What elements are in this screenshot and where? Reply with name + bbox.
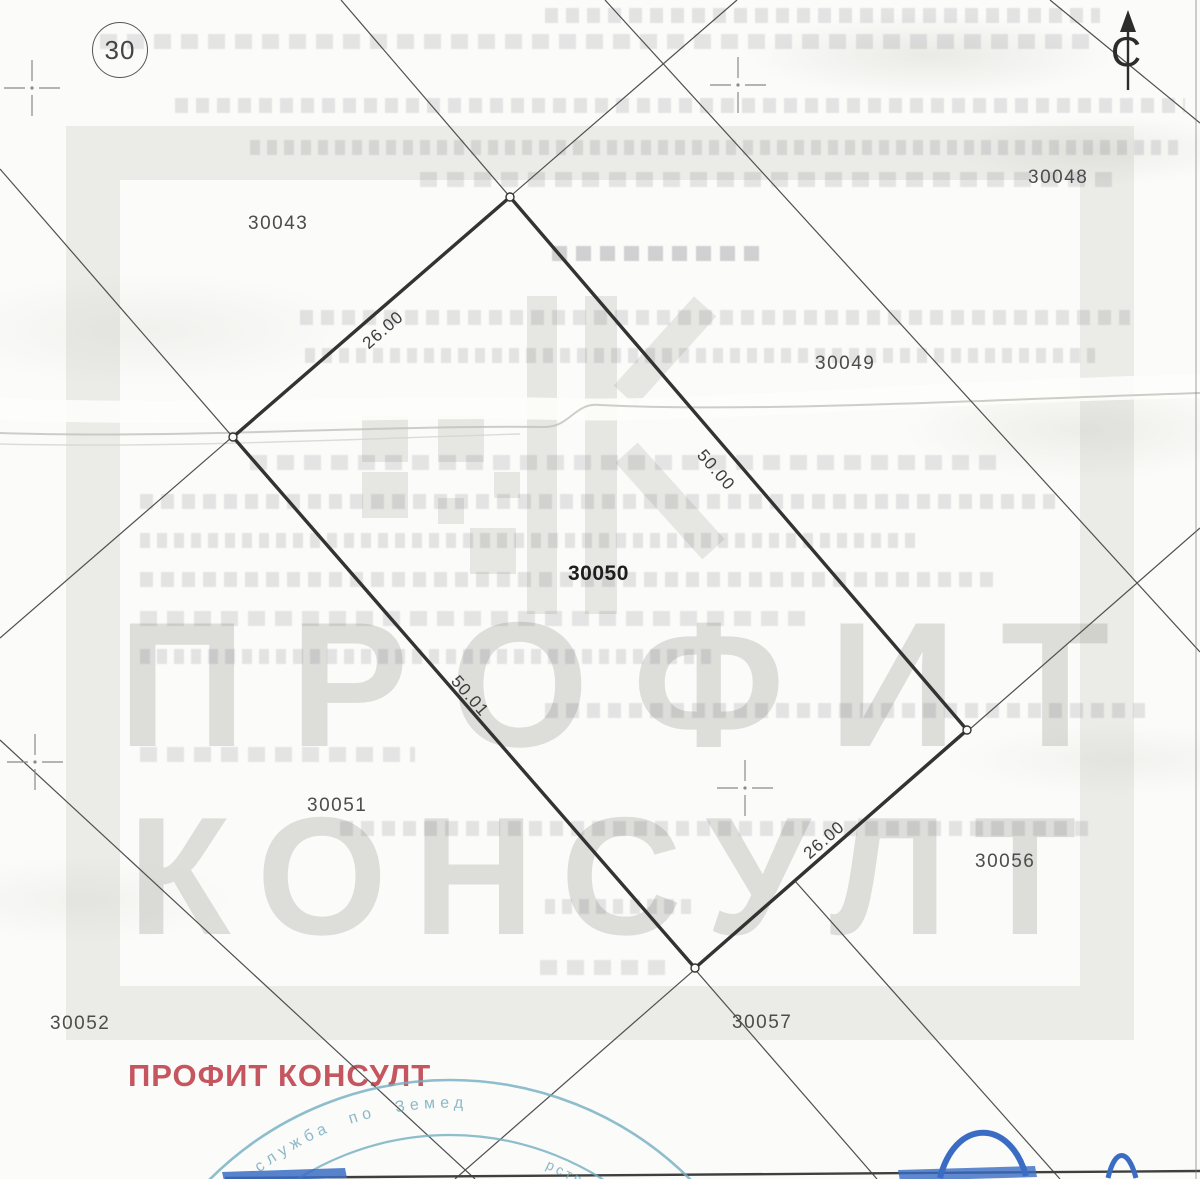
parcel-label-30048: 30048 <box>1028 168 1088 187</box>
scanned-cadastral-sketch: ПРОФИТ КОНСУЛТ ПРОФИТ КОНСУЛТ <box>0 0 1200 1179</box>
parcel-label-30052: 30052 <box>50 1014 110 1033</box>
parcel-boundaries-thin <box>0 0 1200 1179</box>
north-arrow-head <box>1120 10 1136 32</box>
survey-crosshair <box>7 734 63 790</box>
pen-signature-arc <box>1108 1156 1136 1179</box>
pen-marks <box>222 1133 1136 1179</box>
map-sheet-number-circle: 30 <box>92 22 148 78</box>
survey-point <box>506 193 514 201</box>
paper-crease <box>0 374 1200 445</box>
boundary-line <box>795 881 1060 1179</box>
pen-underline <box>222 1168 347 1179</box>
survey-point <box>963 726 971 734</box>
parcel-label-30043: 30043 <box>248 214 308 233</box>
official-stamp: служба по Земед рство <box>110 1080 790 1179</box>
parcel-label-30056: 30056 <box>975 852 1035 871</box>
map-sheet-number: 30 <box>105 35 136 66</box>
north-letter: С <box>1111 28 1141 75</box>
survey-crosshair <box>717 760 773 816</box>
parcel-label-30051: 30051 <box>307 796 367 815</box>
boundary-line <box>341 0 510 197</box>
survey-point <box>229 433 237 441</box>
document-bottom-rule <box>225 1171 1200 1178</box>
parcel-label-30049: 30049 <box>815 354 875 373</box>
cadastral-map-drawing: С служба по Земед рство <box>0 0 1200 1179</box>
survey-point <box>691 964 699 972</box>
grid-crosshairs <box>4 57 773 816</box>
scan-edge-shadow <box>1195 0 1197 1179</box>
parcel-label-30057: 30057 <box>732 1013 792 1032</box>
north-arrow: С <box>1111 10 1141 90</box>
boundary-line <box>605 0 1200 652</box>
survey-crosshair <box>4 60 60 116</box>
survey-crosshair <box>710 57 766 113</box>
parcel-label-30050: 30050 <box>568 563 629 584</box>
pen-underline <box>898 1166 1037 1179</box>
